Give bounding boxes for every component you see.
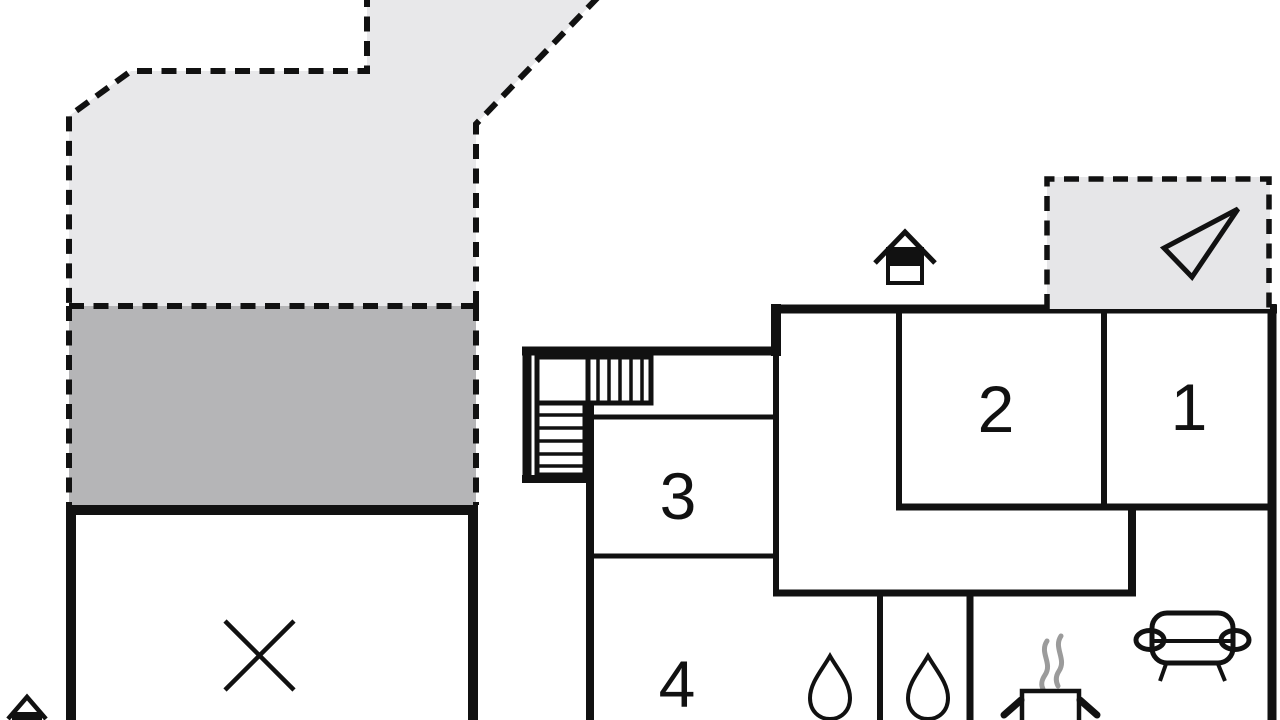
sofa-leg-left [1160, 664, 1166, 681]
house-entrance-icon-small [8, 697, 46, 720]
north-box-fill [1047, 177, 1270, 309]
stair-treads-lower [539, 415, 583, 466]
stair-treads-upper [598, 359, 642, 401]
sofa-icon [1136, 613, 1249, 681]
sofa-leg-right [1218, 664, 1225, 681]
pot-handle-right [1080, 700, 1097, 715]
floor-plan: 3 4 2 1 [0, 0, 1280, 720]
floor-plan-canvas: 3 4 2 1 [0, 0, 1280, 720]
pot-handle-left [1004, 700, 1021, 715]
north-arrow-box [1047, 177, 1270, 309]
upper-terrace-area [69, 0, 603, 306]
lower-terrace-area [69, 306, 476, 507]
upper-terrace-fill [69, 0, 603, 306]
room-4-label: 4 [659, 647, 696, 720]
carport-walls [71, 510, 473, 720]
middle-section: 3 4 [522, 347, 781, 720]
room-1-label: 1 [1171, 370, 1208, 444]
stair-upper-flight [537, 357, 651, 403]
cooking-pot-icon [1004, 691, 1097, 720]
room-2-label: 2 [978, 372, 1015, 446]
water-drop-icon-1 [810, 656, 850, 719]
house-entrance-icon [875, 232, 935, 283]
steam-icon [1042, 636, 1062, 689]
cross-icon [225, 621, 294, 690]
pot-body [1022, 691, 1079, 720]
lower-terrace-fill [69, 306, 476, 507]
house-body [12, 712, 42, 720]
house-body-top [888, 249, 922, 266]
carport-room [71, 510, 473, 720]
water-drop-icon-2 [908, 656, 948, 719]
room-3-label: 3 [660, 459, 697, 533]
right-section: 2 1 [771, 304, 1277, 720]
